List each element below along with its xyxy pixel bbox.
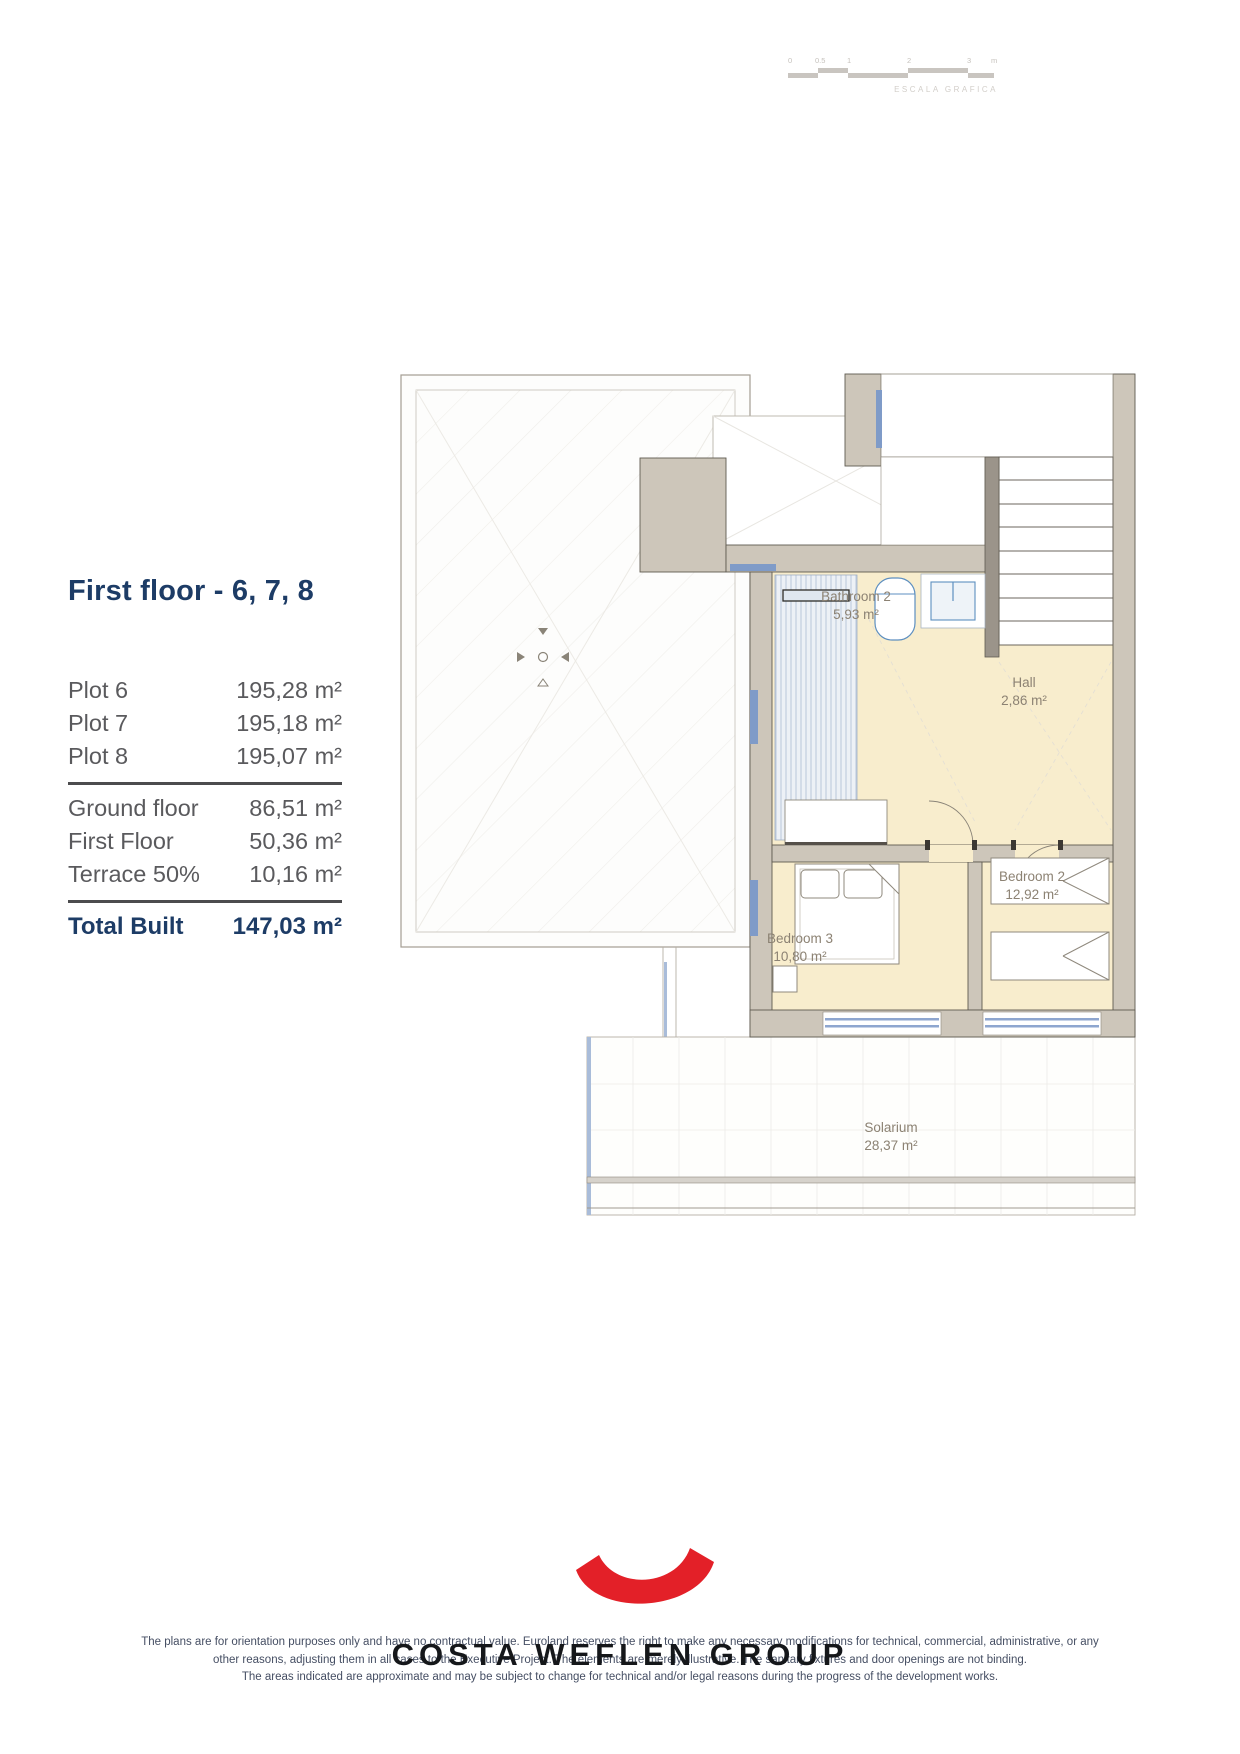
floor-plan-drawing — [395, 362, 1140, 1222]
plot-value: 195,28 m² — [236, 674, 342, 707]
scale-tick-label: 0.5 — [815, 56, 825, 65]
area-value: 50,36 m² — [249, 825, 342, 858]
scale-tick-label: 3 — [967, 56, 971, 65]
room-label-bathroom-2: Bathroom 2 5,93 m² — [821, 588, 891, 624]
graphic-scale-bar: 0 0.5 1 2 3 m ESCALA GRAFICA — [788, 56, 998, 96]
scale-bar-caption: ESCALA GRAFICA — [788, 85, 998, 94]
room-name: Hall — [1001, 674, 1047, 692]
scale-tick-label: 1 — [847, 56, 851, 65]
nightstand — [773, 966, 797, 992]
table-row: Plot 7 195,18 m² — [68, 707, 342, 740]
wall-block — [640, 458, 726, 572]
single-bed-icon — [991, 932, 1109, 980]
room-name: Bedroom 2 — [999, 868, 1065, 886]
area-value: 10,16 m² — [249, 858, 342, 891]
room-name: Bedroom 3 — [767, 930, 833, 948]
scale-bar-numbers: 0 0.5 1 2 3 m — [788, 56, 998, 66]
room-name: Bathroom 2 — [821, 588, 891, 606]
table-row: Terrace 50% 10,16 m² — [68, 858, 342, 891]
info-panel: First floor - 6, 7, 8 Plot 6 195,28 m² P… — [68, 575, 342, 944]
scale-tick-label: m — [991, 56, 997, 65]
area-label: First Floor — [68, 825, 174, 858]
stair-wall — [985, 457, 999, 657]
plot-value: 195,07 m² — [236, 740, 342, 773]
room-area: 10,80 m² — [767, 948, 833, 966]
divider — [68, 900, 342, 903]
total-value: 147,03 m² — [233, 910, 342, 944]
room-label-bedroom-2: Bedroom 2 12,92 m² — [999, 868, 1065, 904]
balustrade — [587, 1177, 1135, 1183]
room-name: Solarium — [864, 1119, 917, 1137]
plot-value: 195,18 m² — [236, 707, 342, 740]
wardrobe — [785, 800, 887, 845]
table-row: First Floor 50,36 m² — [68, 825, 342, 858]
divider — [68, 782, 342, 785]
total-built-row: Total Built 147,03 m² — [68, 910, 342, 944]
room-area: 5,93 m² — [821, 606, 891, 624]
plot-label: Plot 7 — [68, 707, 128, 740]
area-label: Ground floor — [68, 792, 199, 825]
plot-label: Plot 6 — [68, 674, 128, 707]
table-row: Plot 8 195,07 m² — [68, 740, 342, 773]
plot-table: Plot 6 195,28 m² Plot 7 195,18 m² Plot 8… — [68, 674, 342, 944]
page-title: First floor - 6, 7, 8 — [68, 575, 342, 608]
area-value: 86,51 m² — [249, 792, 342, 825]
brand-name: COSTA WEFLEN GROUP — [392, 1637, 849, 1673]
room-area: 28,37 m² — [864, 1137, 917, 1155]
scale-tick-label: 0 — [788, 56, 792, 65]
brochure-page: 0 0.5 1 2 3 m ESCALA GRAFICA First floor… — [0, 0, 1240, 1754]
solarium-area — [587, 1037, 1135, 1215]
table-row: Plot 6 195,28 m² — [68, 674, 342, 707]
room-label-hall: Hall 2,86 m² — [1001, 674, 1047, 710]
scale-bar-segments — [788, 68, 998, 78]
window-strip — [664, 962, 667, 1037]
total-label: Total Built — [68, 910, 184, 944]
room-label-solarium: Solarium 28,37 m² — [864, 1119, 917, 1155]
room-label-bedroom-3: Bedroom 3 10,80 m² — [767, 930, 833, 966]
area-label: Terrace 50% — [68, 858, 200, 891]
room-area: 2,86 m² — [1001, 692, 1047, 710]
room-area: 12,92 m² — [999, 886, 1065, 904]
table-row: Ground floor 86,51 m² — [68, 792, 342, 825]
brand-logo-arc-icon — [571, 1546, 719, 1624]
window-strip — [587, 1037, 591, 1215]
plot-label: Plot 8 — [68, 740, 128, 773]
scale-tick-label: 2 — [907, 56, 911, 65]
